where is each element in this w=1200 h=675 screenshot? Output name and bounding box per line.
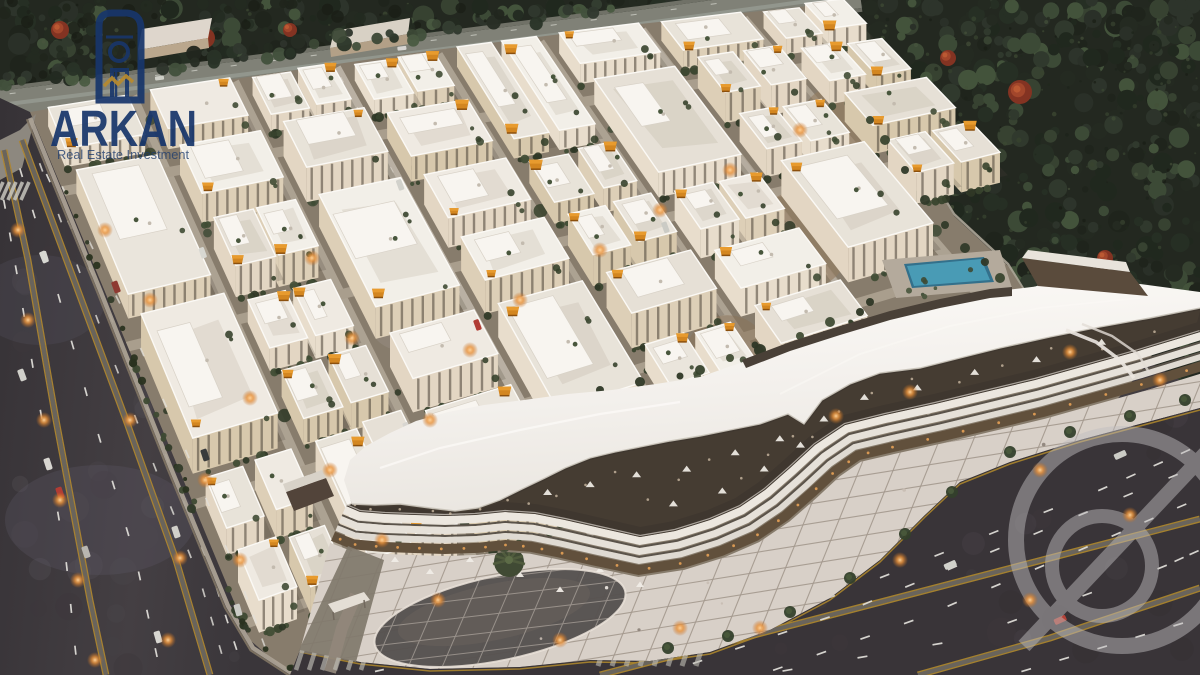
svg-text:Real Estate Investment: Real Estate Investment — [57, 148, 190, 162]
